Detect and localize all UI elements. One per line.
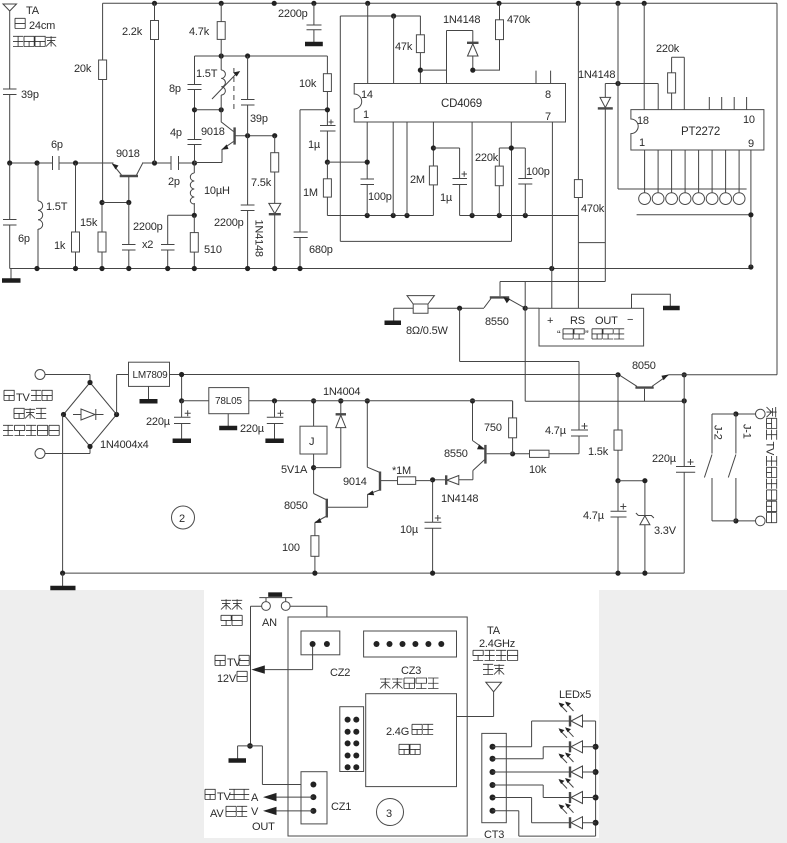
svg-text:+: + — [547, 315, 553, 327]
svg-text:1.5T: 1.5T — [196, 68, 218, 80]
svg-text:”: ” — [585, 329, 589, 341]
svg-text:CD4069: CD4069 — [441, 98, 482, 110]
svg-text:4.7µ: 4.7µ — [545, 425, 567, 437]
svg-text:15k: 15k — [80, 217, 98, 229]
svg-text:1k: 1k — [54, 240, 66, 252]
svg-text:6p: 6p — [51, 139, 63, 151]
svg-text:LEDx5: LEDx5 — [559, 689, 591, 701]
svg-text:9: 9 — [748, 138, 754, 150]
svg-text:100p: 100p — [526, 166, 550, 178]
svg-text:1: 1 — [639, 137, 645, 149]
svg-text:1N4004: 1N4004 — [323, 386, 360, 398]
svg-text:TA: TA — [487, 625, 501, 637]
svg-text:2.4GHz: 2.4GHz — [479, 638, 515, 650]
svg-text:1N4148: 1N4148 — [578, 69, 615, 81]
svg-text:470k: 470k — [581, 203, 605, 215]
svg-text:1.5T: 1.5T — [46, 201, 68, 213]
svg-text:4.7µ: 4.7µ — [583, 510, 605, 522]
svg-text:1M: 1M — [303, 187, 318, 199]
svg-text:OUT: OUT — [595, 315, 618, 327]
svg-text:J-1: J-1 — [741, 424, 753, 439]
svg-text:220k: 220k — [475, 152, 499, 164]
svg-text:CZ1: CZ1 — [331, 801, 351, 813]
svg-text:9018: 9018 — [201, 126, 225, 138]
svg-text:78L05: 78L05 — [215, 396, 242, 407]
svg-text:1N4148: 1N4148 — [443, 14, 480, 26]
svg-text:12V: 12V — [217, 673, 237, 685]
svg-text:1: 1 — [363, 109, 369, 121]
svg-text:3: 3 — [386, 808, 392, 820]
svg-text:“: “ — [557, 329, 561, 341]
svg-text:1µ: 1µ — [440, 192, 453, 204]
svg-text:8550: 8550 — [485, 316, 509, 328]
svg-text:100p: 100p — [368, 191, 392, 203]
svg-text:7: 7 — [545, 111, 551, 123]
svg-text:510: 510 — [204, 244, 222, 256]
svg-text:V: V — [251, 806, 259, 818]
svg-text:AV: AV — [210, 808, 224, 820]
svg-text:CT3: CT3 — [484, 829, 504, 841]
svg-text:10: 10 — [743, 114, 755, 126]
svg-text:4.7k: 4.7k — [189, 26, 210, 38]
svg-text:750: 750 — [484, 422, 502, 434]
svg-text:220µ: 220µ — [652, 453, 677, 465]
svg-text:9018: 9018 — [116, 148, 140, 160]
svg-text:2p: 2p — [168, 176, 180, 188]
svg-text:2200p: 2200p — [278, 8, 308, 20]
svg-text:PT2272: PT2272 — [681, 126, 720, 138]
svg-text:−: − — [627, 314, 633, 326]
svg-text:2200p: 2200p — [133, 221, 163, 233]
svg-text:10k: 10k — [529, 464, 547, 476]
svg-text:5V1A: 5V1A — [281, 464, 308, 476]
svg-text:7.5k: 7.5k — [251, 177, 272, 189]
svg-text:18: 18 — [637, 115, 649, 127]
svg-text:8550: 8550 — [444, 448, 468, 460]
svg-text:2M: 2M — [410, 174, 425, 186]
svg-text:220k: 220k — [656, 43, 680, 55]
svg-text:J: J — [309, 436, 314, 448]
svg-text:1N4148: 1N4148 — [253, 220, 265, 257]
svg-text:8: 8 — [545, 89, 551, 101]
svg-text:RS: RS — [570, 315, 585, 327]
svg-text:8p: 8p — [169, 83, 181, 95]
svg-text:9014: 9014 — [343, 476, 367, 488]
svg-text:2.4G: 2.4G — [386, 726, 409, 738]
svg-text:100: 100 — [282, 542, 300, 554]
svg-text:TV: TV — [16, 392, 31, 404]
svg-text:8Ω/0.5W: 8Ω/0.5W — [406, 325, 448, 337]
svg-text:*1M: *1M — [392, 465, 411, 477]
svg-text:10µH: 10µH — [204, 185, 230, 197]
svg-text:2200p: 2200p — [214, 217, 244, 229]
svg-text:CZ3: CZ3 — [401, 665, 421, 677]
svg-text:8050: 8050 — [632, 360, 656, 372]
svg-text:4p: 4p — [170, 127, 182, 139]
svg-text:CZ2: CZ2 — [330, 667, 350, 679]
svg-text:3.3V: 3.3V — [654, 525, 677, 537]
svg-text:AN: AN — [262, 617, 277, 629]
svg-text:TA: TA — [26, 5, 40, 17]
svg-text:J-2: J-2 — [712, 425, 724, 440]
svg-text:24cm: 24cm — [29, 20, 55, 32]
svg-text:1N4004x4: 1N4004x4 — [100, 439, 149, 451]
svg-text:14: 14 — [361, 89, 373, 101]
svg-text:6p: 6p — [18, 233, 30, 245]
svg-text:470k: 470k — [507, 14, 531, 26]
svg-text:20k: 20k — [74, 63, 92, 75]
svg-text:TV: TV — [764, 442, 776, 457]
svg-text:1.5k: 1.5k — [588, 446, 609, 458]
svg-text:220µ: 220µ — [146, 416, 171, 428]
svg-text:x2: x2 — [142, 239, 153, 251]
svg-text:2.2k: 2.2k — [122, 26, 143, 38]
svg-text:2: 2 — [179, 513, 185, 525]
svg-text:39p: 39p — [21, 89, 39, 101]
svg-text:LM7809: LM7809 — [133, 370, 169, 381]
svg-text:1µ: 1µ — [308, 139, 321, 151]
svg-text:OUT: OUT — [252, 821, 275, 833]
svg-text:47k: 47k — [395, 41, 413, 53]
svg-text:39p: 39p — [250, 113, 268, 125]
svg-text:10k: 10k — [299, 78, 317, 90]
svg-text:8050: 8050 — [284, 500, 308, 512]
svg-text:A: A — [251, 792, 259, 804]
svg-text:1N4148: 1N4148 — [441, 493, 478, 505]
svg-text:680p: 680p — [309, 244, 333, 256]
svg-text:TV: TV — [217, 791, 232, 803]
svg-text:220µ: 220µ — [240, 423, 265, 435]
svg-text:10µ: 10µ — [400, 524, 419, 536]
